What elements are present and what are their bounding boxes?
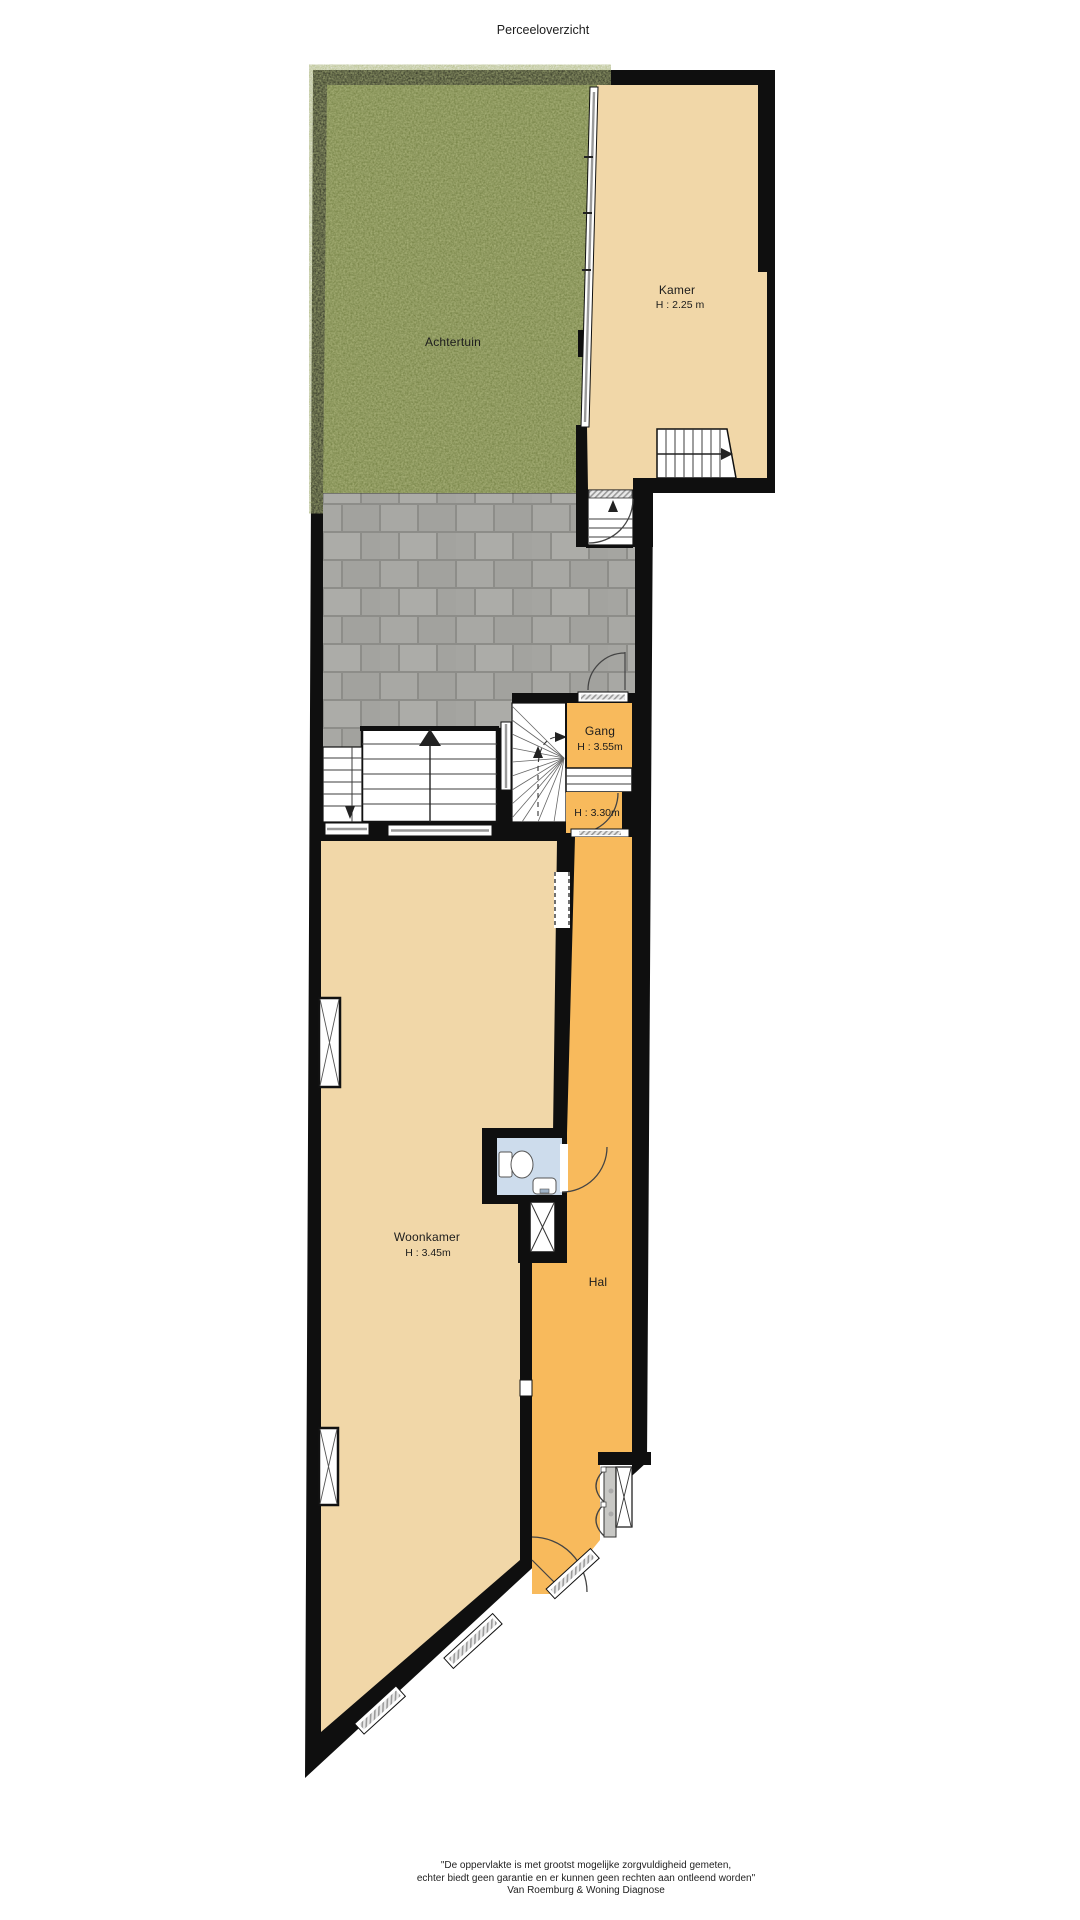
label-gang: Gang [585,724,615,738]
label-landing-height: H : 3.30m [574,807,620,819]
woonkamer-top-window-left [325,823,369,835]
floorplan-drawing [0,0,1080,1920]
toilet-icon [499,1151,533,1178]
gang-mini-stairs [566,768,632,792]
porch-stairs-side [323,747,362,822]
garden-step-box [588,490,633,545]
label-woonkamer-height: H : 3.45m [405,1247,451,1259]
wall-niche [520,1380,532,1396]
winder-window [501,722,511,790]
kamer-stairs [657,429,736,478]
wall-stub [576,425,589,547]
disclaimer-text: "De oppervlakte is met grootst mogelijke… [417,1860,755,1898]
label-gang-height: H : 3.55m [577,741,623,753]
label-kamer: Kamer [659,283,695,297]
label-woonkamer: Woonkamer [394,1230,460,1244]
sink-icon [533,1178,556,1194]
porch-stairs-main [360,726,499,822]
wall-opening-dashed [554,872,570,928]
disclaimer-company: Van Roemburg & Woning Diagnose [417,1885,755,1898]
label-achtertuin: Achtertuin [425,335,481,349]
chimney-box-upper [319,998,340,1087]
disclaimer-line-1: "De oppervlakte is met grootst mogelijke… [417,1860,755,1873]
floorplan-page: Perceeloverzicht [0,0,1080,1920]
winder-stairs [512,703,567,822]
meter-closet [596,1452,651,1537]
gang-window [578,692,628,702]
chimney-box-lower [319,1428,338,1505]
label-kamer-height: H : 2.25 m [656,299,704,311]
label-hal: Hal [589,1275,608,1289]
garden-area [323,85,597,493]
shaft-cross-icon [616,1467,632,1527]
wall-corner [633,478,653,547]
woonkamer-top-window-right [388,825,492,836]
shaft-box [518,1196,567,1263]
disclaimer-line-2: echter biedt geen garantie en er kunnen … [417,1873,755,1886]
